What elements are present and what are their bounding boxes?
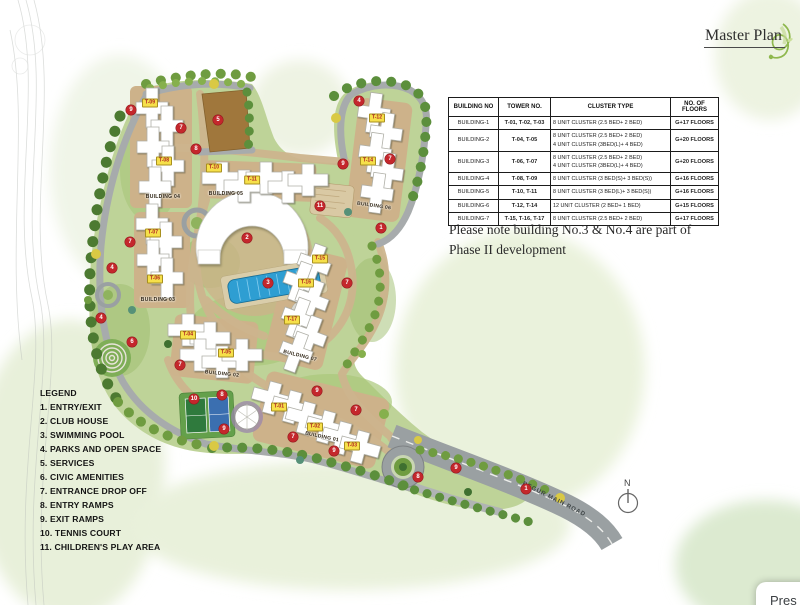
master-plan-page: Master Plan BUILDING NO TOWER NO. CLUSTE… (0, 0, 800, 605)
tower-tag: T-15 (312, 255, 328, 264)
map-marker: 7 (175, 360, 185, 370)
fullscreen-notice-text: Pres (770, 593, 797, 605)
building-label: BUILDING 03 (141, 297, 175, 303)
map-marker: 3 (263, 278, 273, 288)
map-marker: 2 (242, 233, 252, 243)
building-label: BUILDING 05 (209, 191, 243, 197)
map-marker: 9 (329, 446, 339, 456)
tower-tag: T-12 (369, 114, 385, 123)
building-label: BUILDING 04 (146, 194, 180, 200)
map-marker: 1 (521, 484, 531, 494)
main-road-label: BEGUR MAIN ROAD (521, 481, 586, 518)
tower-tag: T-01 (271, 403, 287, 412)
tower-tag: T-11 (244, 176, 260, 185)
map-marker: 10 (189, 394, 199, 404)
map-marker: 9 (312, 386, 322, 396)
map-marker: 7 (288, 432, 298, 442)
map-marker: 4 (96, 313, 106, 323)
tower-tag: T-05 (218, 349, 234, 358)
map-marker: 7 (351, 405, 361, 415)
map-overlay: BEGUR MAIN ROAD N 9785497111237446771089… (0, 0, 800, 605)
tower-tag: T-08 (156, 157, 172, 166)
tower-tag: T-10 (206, 164, 222, 173)
map-marker: 6 (127, 337, 137, 347)
building-label: BUILDING 02 (205, 369, 240, 379)
map-marker: 9 (219, 424, 229, 434)
fullscreen-notice-popup[interactable]: Pres (756, 582, 800, 605)
tower-tag: T-02 (307, 423, 323, 432)
map-marker: 4 (354, 96, 364, 106)
tower-tag: T-06 (147, 275, 163, 284)
building-label: BUILDING 07 (283, 349, 318, 363)
map-marker: 8 (191, 144, 201, 154)
map-marker: 4 (107, 263, 117, 273)
map-marker: 7 (176, 123, 186, 133)
tower-tag: T-17 (284, 316, 300, 325)
tower-tag: T-09 (142, 99, 158, 108)
compass-north-label: N (624, 478, 631, 488)
map-marker: 7 (125, 237, 135, 247)
tower-tag: T-03 (344, 442, 360, 451)
map-marker: 8 (413, 472, 423, 482)
building-label: BUILDING 01 (305, 430, 340, 443)
map-marker: 11 (315, 201, 325, 211)
building-label: BUILDING 06 (357, 201, 392, 212)
tower-tag: T-04 (180, 331, 196, 340)
map-marker: 9 (451, 463, 461, 473)
map-marker: 1 (376, 223, 386, 233)
map-marker: 7 (342, 278, 352, 288)
tower-tag: T-16 (298, 279, 314, 288)
map-marker: 8 (217, 390, 227, 400)
map-marker: 7 (385, 154, 395, 164)
map-marker: 5 (213, 115, 223, 125)
tower-tag: T-07 (145, 229, 161, 238)
tower-tag: T-14 (360, 157, 376, 166)
map-marker: 9 (338, 159, 348, 169)
map-marker: 9 (126, 105, 136, 115)
